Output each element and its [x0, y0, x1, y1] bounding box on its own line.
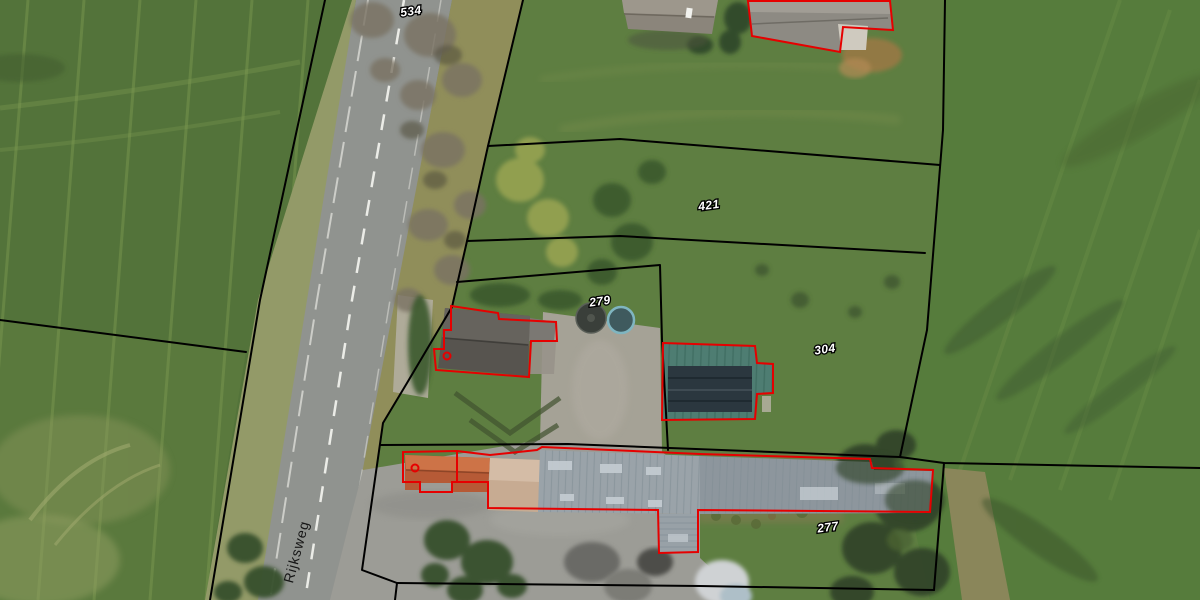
aerial-map-viewport[interactable]: 534 421 279 304 277 Rijksweg: [0, 0, 1200, 600]
parcel-label-304: 304: [813, 341, 836, 358]
parcel-label-534: 534: [399, 3, 422, 20]
barn-roof: [622, 0, 718, 34]
aerial-map-canvas: 534 421 279 304 277 Rijksweg: [0, 0, 1200, 600]
